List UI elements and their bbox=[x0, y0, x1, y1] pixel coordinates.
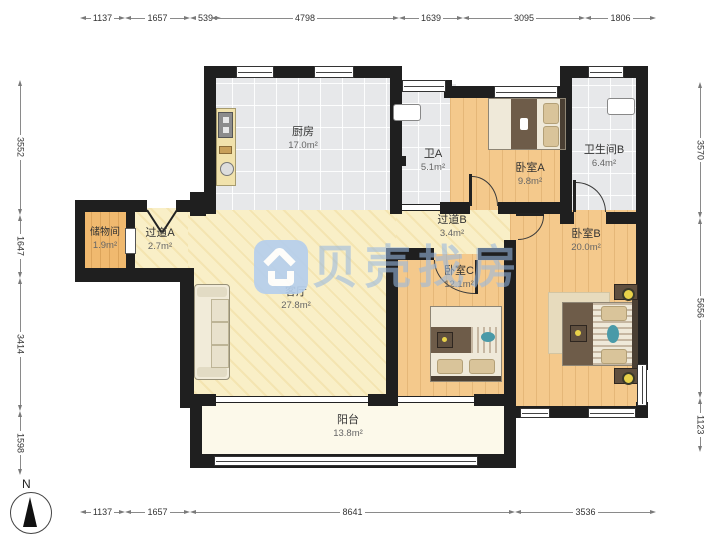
window bbox=[588, 66, 624, 78]
dim-value: 1647 bbox=[16, 234, 25, 258]
room-label-bath-a: 卫A 5.1m² bbox=[421, 148, 445, 173]
dim-value: 5656 bbox=[696, 296, 705, 320]
wall bbox=[368, 394, 398, 406]
bath-b-basin bbox=[607, 98, 635, 115]
wall bbox=[390, 156, 406, 166]
wall bbox=[560, 212, 574, 224]
floor-plan: 厨房 17.0m² 卫A 5.1m² 卧室A 9.8m² 卫生间B 6.4m² … bbox=[0, 0, 720, 540]
dim-left-3552: 3552 bbox=[14, 80, 26, 215]
kitchen-cooktop bbox=[220, 162, 234, 176]
wall bbox=[204, 66, 402, 78]
dim-top-1657: 1657 bbox=[125, 13, 190, 23]
dim-left-1598: 1598 bbox=[14, 411, 26, 475]
dim-value: 3536 bbox=[573, 508, 597, 517]
bath-a-slider-door bbox=[402, 204, 440, 211]
room-label-hall-b: 过道B 3.4m² bbox=[437, 214, 466, 239]
bath-a-basin bbox=[393, 104, 421, 121]
dim-top-1639: 1639 bbox=[399, 13, 463, 23]
dim-value: 3414 bbox=[16, 332, 25, 356]
room-name: 卧室B bbox=[571, 228, 601, 242]
wall bbox=[75, 268, 187, 282]
room-name: 卫生间B bbox=[584, 144, 624, 158]
room-name: 阳台 bbox=[333, 414, 363, 428]
dim-value: 4798 bbox=[293, 14, 317, 23]
room-area: 13.8m² bbox=[333, 428, 363, 439]
room-area: 2.7m² bbox=[145, 241, 174, 252]
wall bbox=[126, 212, 135, 228]
dim-value: 1639 bbox=[419, 14, 443, 23]
room-area: 17.0m² bbox=[288, 140, 318, 151]
dim-value: 1137 bbox=[91, 508, 114, 517]
dim-top-3095: 3095 bbox=[463, 13, 585, 23]
beike-logo-icon bbox=[254, 240, 308, 294]
dim-top-4798: 4798 bbox=[211, 13, 399, 23]
room-name: 卫A bbox=[421, 148, 445, 162]
dim-value: 1137 bbox=[91, 14, 114, 23]
watermark-text: 贝壳找房 bbox=[312, 244, 524, 290]
wall bbox=[606, 212, 648, 224]
dim-left-3414: 3414 bbox=[14, 278, 26, 411]
dim-value: 1806 bbox=[608, 14, 632, 23]
room-label-kitchen: 厨房 17.0m² bbox=[288, 126, 318, 151]
window bbox=[588, 408, 636, 418]
room-name: 厨房 bbox=[288, 126, 318, 140]
kitchen-item bbox=[219, 146, 232, 154]
dim-right-5656: 5656 bbox=[694, 218, 706, 398]
north-label: N bbox=[22, 477, 31, 491]
bedroom-b-nightstand-bottom bbox=[614, 368, 638, 384]
dim-value: 1123 bbox=[696, 413, 705, 436]
room-label-storage: 储物间 1.9m² bbox=[90, 227, 120, 251]
room-label-bath-b: 卫生间B 6.4m² bbox=[584, 144, 624, 169]
dim-top-1806: 1806 bbox=[585, 13, 656, 23]
dim-top-1137: 1137 bbox=[80, 13, 125, 23]
dim-bottom-1137: 1137 bbox=[80, 507, 125, 517]
balcony-window bbox=[214, 456, 478, 466]
dim-bottom-3536: 3536 bbox=[515, 507, 656, 517]
kitchen-sink bbox=[218, 112, 233, 138]
living-sofa bbox=[194, 284, 230, 380]
window bbox=[236, 66, 274, 78]
room-area: 5.1m² bbox=[421, 162, 445, 173]
window bbox=[520, 408, 550, 418]
bedroom-b-headboard bbox=[632, 300, 638, 368]
room-area: 3.4m² bbox=[437, 228, 466, 239]
dim-top-539: 539 bbox=[190, 13, 211, 23]
room-name: 过道A bbox=[145, 227, 174, 241]
living-balcony-slider bbox=[216, 396, 368, 403]
bedroom-c-balcony-slider bbox=[398, 396, 474, 403]
bedroom-b-nightstand-top bbox=[614, 284, 638, 300]
dim-right-3570: 3570 bbox=[694, 82, 706, 218]
dim-value: 1657 bbox=[145, 508, 169, 517]
room-name: 卧室A bbox=[515, 162, 544, 176]
dim-bottom-8641: 8641 bbox=[190, 507, 515, 517]
dim-value: 3095 bbox=[512, 14, 536, 23]
room-area: 20.0m² bbox=[571, 242, 601, 253]
bedroom-c-bed bbox=[430, 306, 502, 382]
dim-value: 3552 bbox=[16, 135, 25, 159]
room-area: 6.4m² bbox=[584, 158, 624, 169]
window bbox=[494, 86, 558, 98]
room-name: 过道B bbox=[437, 214, 466, 228]
storage-pocket-door bbox=[125, 228, 136, 254]
room-area: 27.8m² bbox=[281, 300, 311, 311]
dim-value: 8641 bbox=[340, 508, 364, 517]
dim-value: 1598 bbox=[16, 431, 25, 455]
window bbox=[637, 364, 647, 406]
dim-left-1647: 1647 bbox=[14, 215, 26, 278]
room-label-bedroom-b: 卧室B 20.0m² bbox=[571, 228, 601, 253]
window bbox=[314, 66, 354, 78]
room-name: 储物间 bbox=[90, 227, 120, 240]
room-label-bedroom-a: 卧室A 9.8m² bbox=[515, 162, 544, 187]
wall bbox=[75, 200, 147, 212]
wall bbox=[126, 254, 135, 270]
dim-right-1123: 1123 bbox=[694, 398, 706, 452]
room-area: 9.8m² bbox=[515, 176, 544, 187]
logo-body-shape bbox=[268, 271, 294, 286]
bedroom-b-bed bbox=[562, 302, 634, 366]
window bbox=[402, 80, 446, 92]
wall bbox=[180, 268, 194, 408]
room-label-balcony: 阳台 13.8m² bbox=[333, 414, 363, 439]
bedroom-a-bed bbox=[488, 98, 566, 150]
north-arrow-icon bbox=[23, 497, 37, 527]
wall bbox=[440, 202, 470, 214]
room-area: 1.9m² bbox=[90, 240, 120, 251]
dim-bottom-1657: 1657 bbox=[125, 507, 190, 517]
room-label-hall-a: 过道A 2.7m² bbox=[145, 227, 174, 252]
wall bbox=[190, 192, 206, 216]
dim-value: 1657 bbox=[145, 14, 169, 23]
dim-value: 3570 bbox=[696, 138, 705, 162]
wall bbox=[636, 66, 648, 236]
